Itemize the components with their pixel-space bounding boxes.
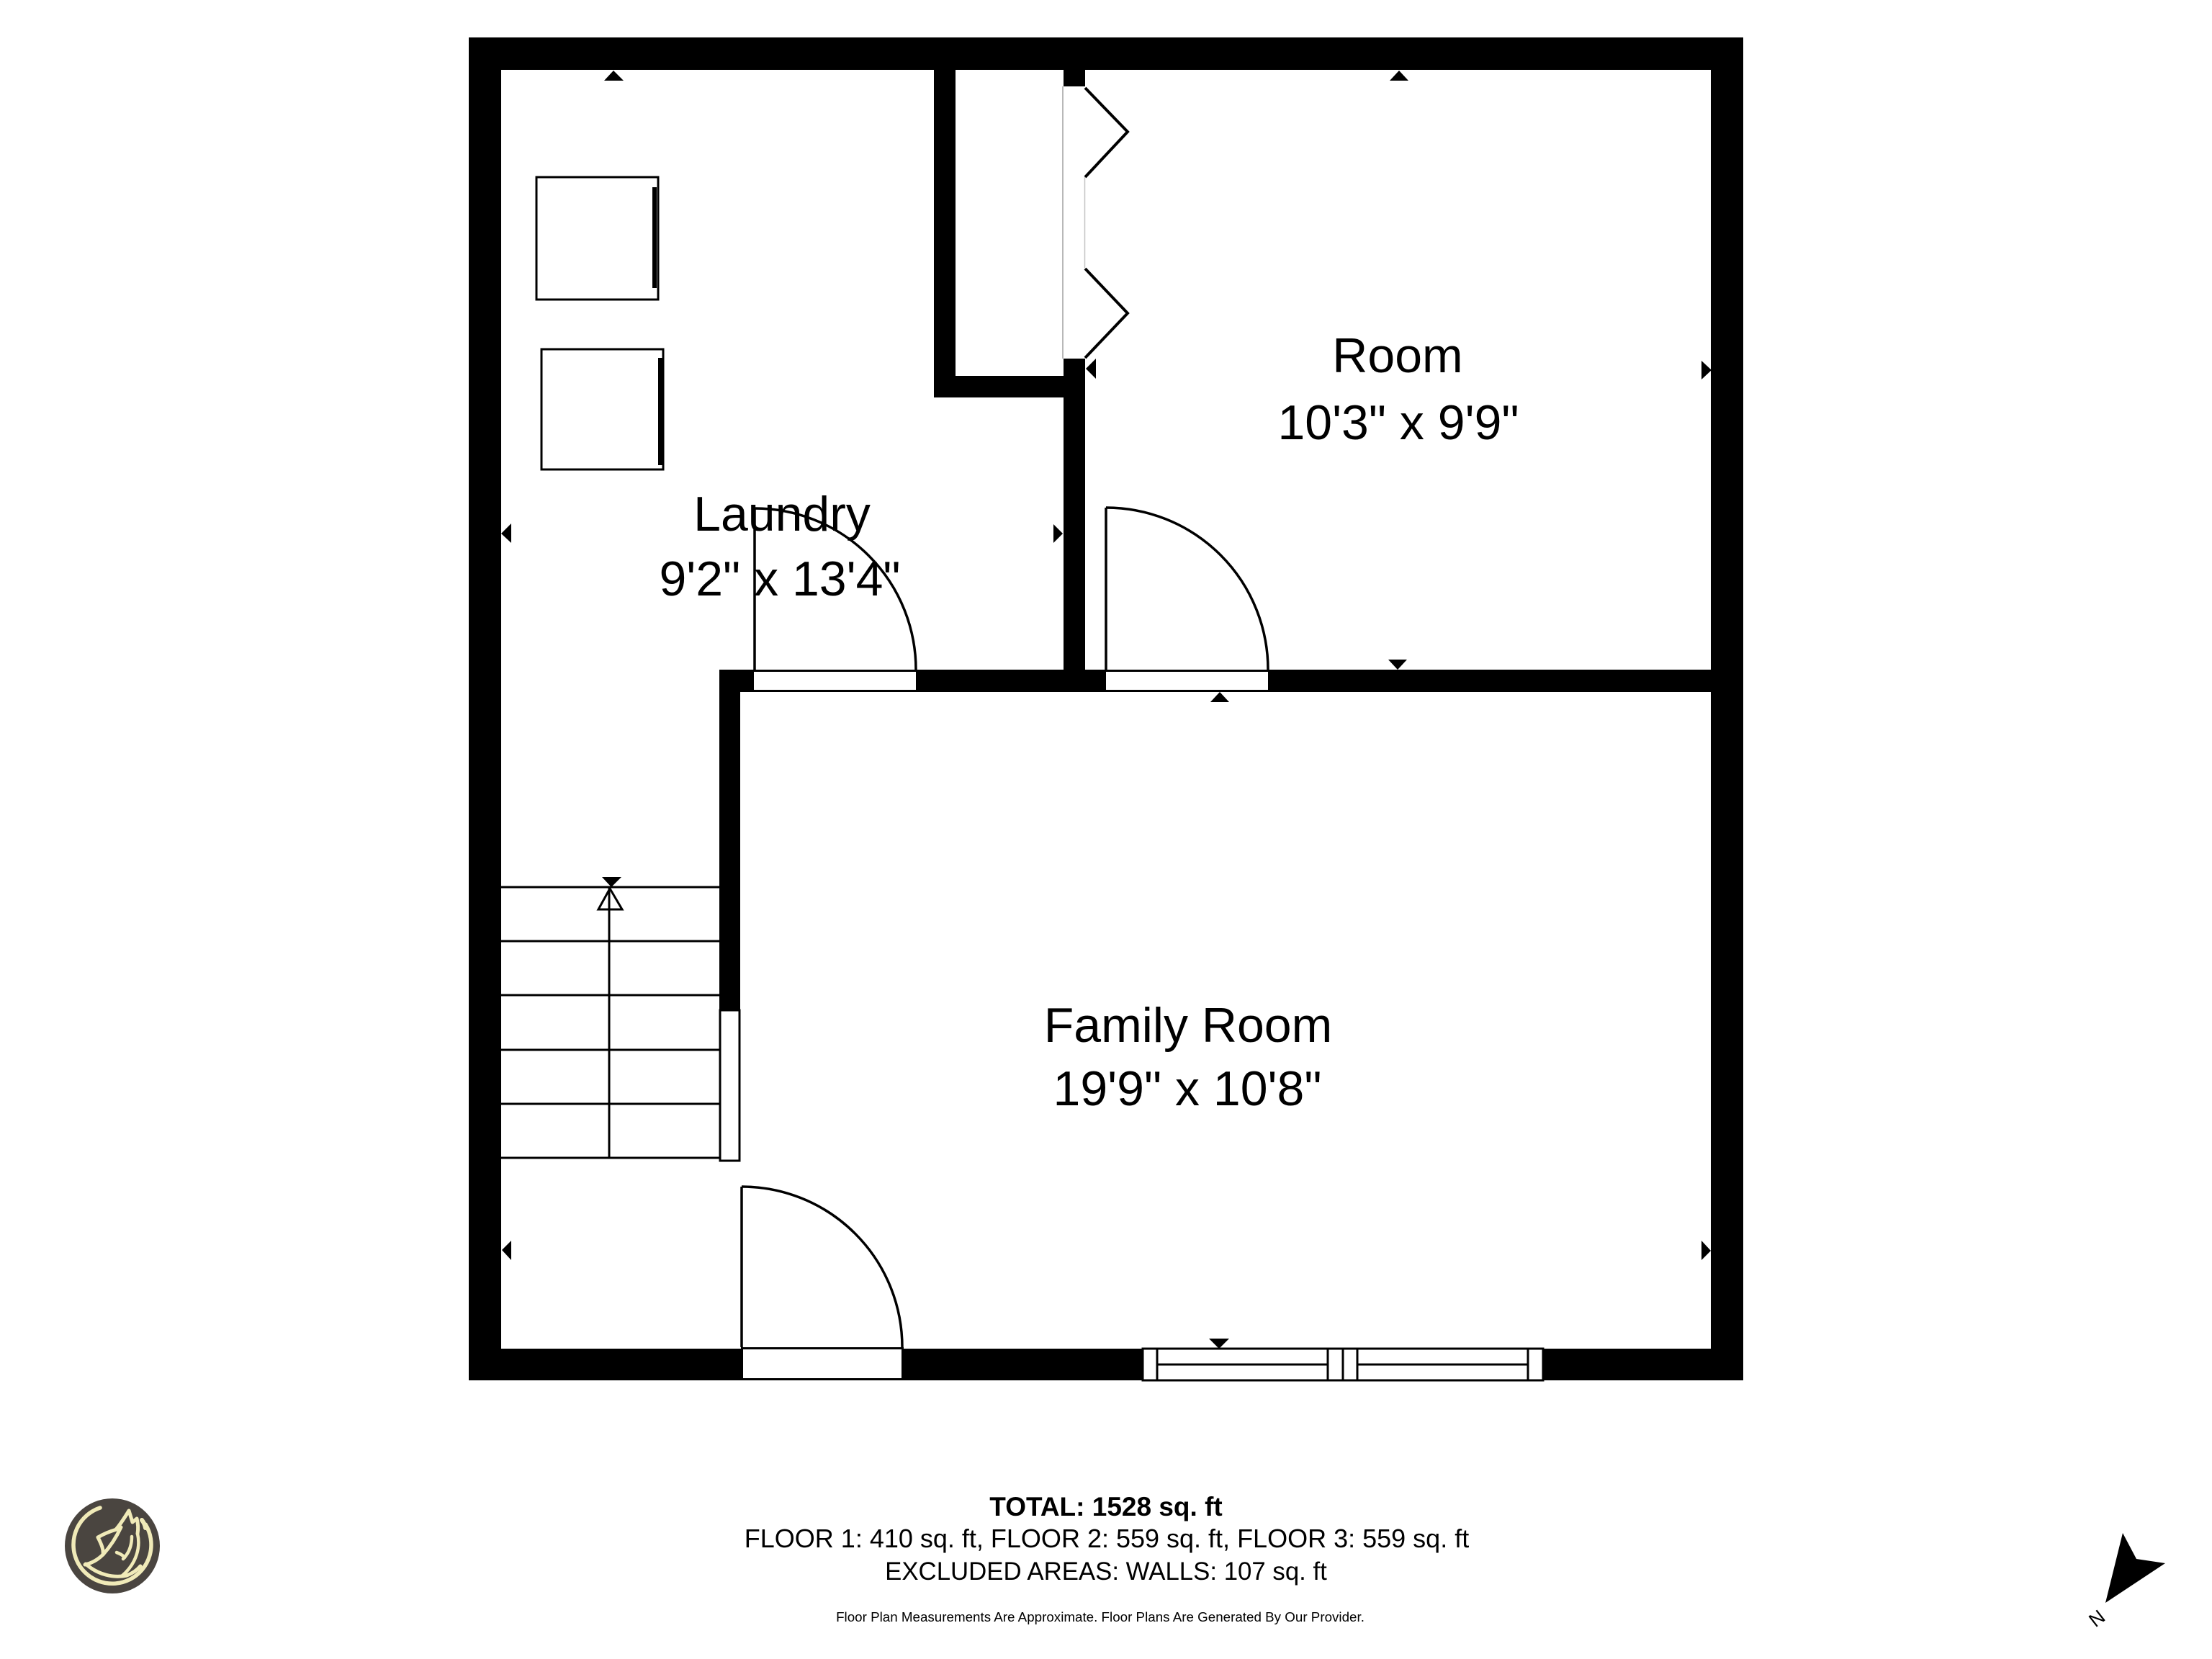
svg-text:9'2" x 13'4": 9'2" x 13'4" bbox=[659, 552, 900, 606]
svg-text:EXCLUDED AREAS: WALLS: 107 sq.: EXCLUDED AREAS: WALLS: 107 sq. ft bbox=[885, 1557, 1327, 1586]
svg-text:Floor Plan Measurements Are Ap: Floor Plan Measurements Are Approximate.… bbox=[836, 1609, 1364, 1624]
svg-text:Family Room: Family Room bbox=[1044, 998, 1333, 1053]
svg-text:Room: Room bbox=[1332, 328, 1462, 383]
svg-text:Laundry: Laundry bbox=[693, 487, 871, 541]
svg-text:19'9" x 10'8": 19'9" x 10'8" bbox=[1053, 1061, 1322, 1116]
svg-text:FLOOR 1: 410 sq. ft, FLOOR 2:: FLOOR 1: 410 sq. ft, FLOOR 2: 559 sq. ft… bbox=[745, 1524, 1469, 1553]
svg-text:TOTAL: 1528 sq. ft: TOTAL: 1528 sq. ft bbox=[989, 1492, 1222, 1521]
svg-text:10'3" x 9'9": 10'3" x 9'9" bbox=[1277, 395, 1519, 450]
